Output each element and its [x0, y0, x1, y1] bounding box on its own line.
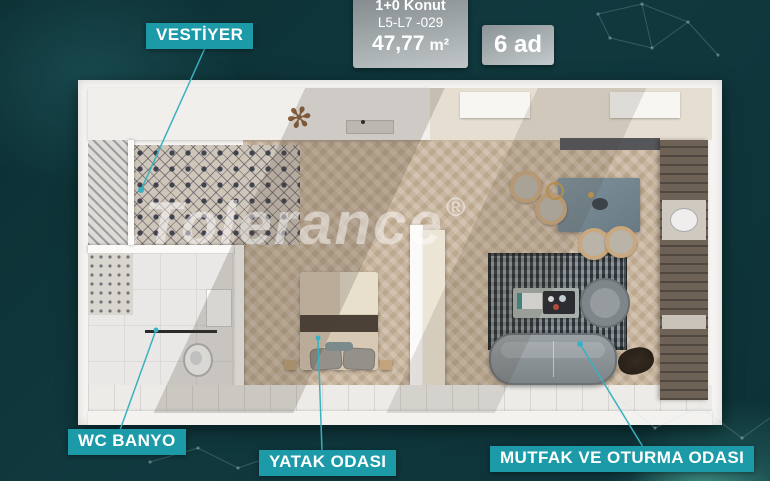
nightstand	[380, 360, 392, 370]
unit-info-box: Tip-g 1+0 Konut L5-L7 -029 47,77m²	[353, 0, 468, 68]
nightstand	[284, 360, 296, 370]
dining-table	[558, 178, 640, 232]
bed	[300, 272, 378, 370]
planter-box	[460, 92, 530, 118]
bed-bench	[325, 342, 353, 351]
terrace-strip	[430, 88, 712, 140]
unit-layout: 1+0 Konut	[353, 0, 468, 15]
bed-cover-fold	[340, 272, 378, 314]
bathroom-floor	[88, 253, 235, 400]
brand-watermark: .Tolerance®	[126, 194, 467, 254]
label-vestiyer: VESTİYER	[146, 23, 253, 49]
label-yatak-odasi: YATAK ODASI	[259, 450, 396, 476]
unit-area-value: 47,77	[372, 32, 425, 55]
glass-partition	[145, 330, 217, 333]
entry-door	[346, 120, 394, 134]
sofa	[489, 333, 617, 385]
promo-floorplan-canvas: ✻	[0, 0, 770, 481]
planter-box	[610, 92, 680, 118]
cabinet-break	[662, 315, 706, 329]
brand-watermark-text: .Tolerance	[126, 190, 444, 257]
dining-chair	[605, 226, 637, 258]
shower-area	[88, 253, 133, 315]
door-handle	[361, 120, 365, 124]
armchair	[580, 278, 630, 328]
bottom-wall	[88, 411, 712, 425]
unit-area-unit: m²	[430, 37, 450, 54]
dining-chair	[510, 171, 542, 203]
label-mutfak-ve-oturma-odasi: MUTFAK VE OTURMA ODASI	[490, 446, 754, 472]
serving-tray	[543, 291, 575, 314]
bathroom-sink	[206, 289, 232, 327]
coffee-table	[513, 288, 579, 318]
unit-block-code: L5-L7 -029	[353, 15, 468, 31]
pendant-lamp	[546, 182, 564, 200]
coffee-table-book	[517, 293, 542, 309]
kitchen-sink	[662, 200, 706, 240]
unit-count-box: 6 ad	[482, 25, 554, 65]
unit-area: 47,77m²	[353, 31, 468, 59]
kitchen-counter	[560, 138, 660, 150]
toilet	[183, 343, 213, 377]
bed-runner	[300, 315, 378, 332]
balcony-walkway	[88, 385, 712, 413]
label-wc-banyo: WC BANYO	[68, 429, 186, 455]
kitchen-cabinets	[660, 140, 708, 400]
registered-mark: ®	[446, 192, 467, 222]
